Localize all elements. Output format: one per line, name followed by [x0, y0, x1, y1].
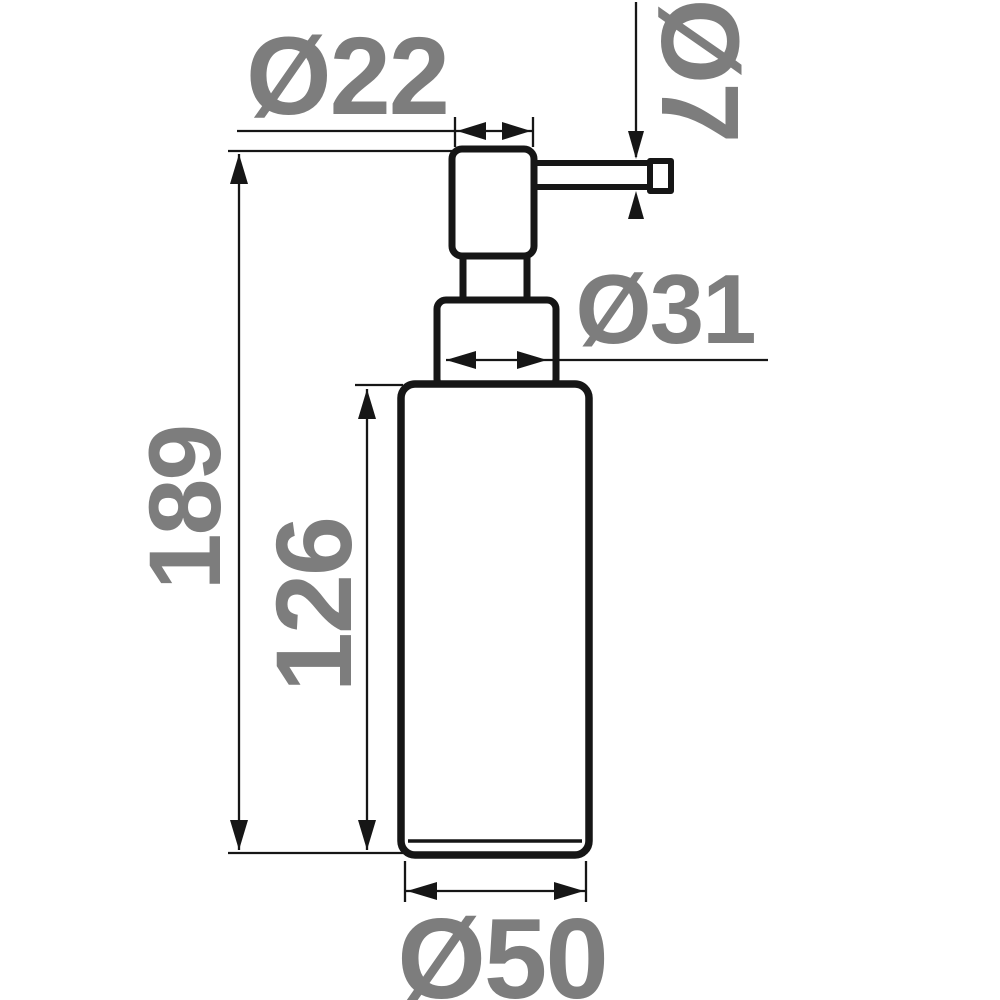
dim-body-height: 126: [253, 385, 403, 850]
dim-189-arrow-bottom: [230, 820, 248, 850]
dim-body-diameter: Ø50: [397, 861, 606, 1000]
pump-head-outline: [452, 149, 534, 256]
bottle-body-outline: [401, 384, 589, 855]
dim-label-total-height: 189: [128, 426, 242, 590]
dim-126-arrow-top: [358, 389, 376, 419]
dim-label-spout-diameter: Ø7: [638, 0, 761, 141]
dim-label-body-diameter: Ø50: [397, 896, 606, 1000]
dimension-drawing: Ø22 Ø7 Ø31 189: [0, 0, 1000, 1000]
spout-tube-outline: [528, 163, 666, 187]
dim-label-collar-diameter: Ø31: [575, 254, 754, 364]
dim-22-arrow-left: [457, 122, 486, 140]
dim-7-arrow-bottom: [628, 191, 644, 219]
dim-126-arrow-bottom: [358, 820, 376, 850]
drawing-canvas: Ø22 Ø7 Ø31 189: [0, 0, 1000, 1000]
spout-tip-outline: [650, 161, 671, 191]
dim-pump-head-diameter: Ø22: [237, 15, 533, 147]
collar-outline: [437, 300, 556, 388]
dim-22-arrow-right: [502, 122, 531, 140]
dim-label-body-height: 126: [253, 518, 374, 692]
dim-189-arrow-top: [230, 154, 248, 184]
dim-label-pump-head-diameter: Ø22: [246, 15, 448, 138]
